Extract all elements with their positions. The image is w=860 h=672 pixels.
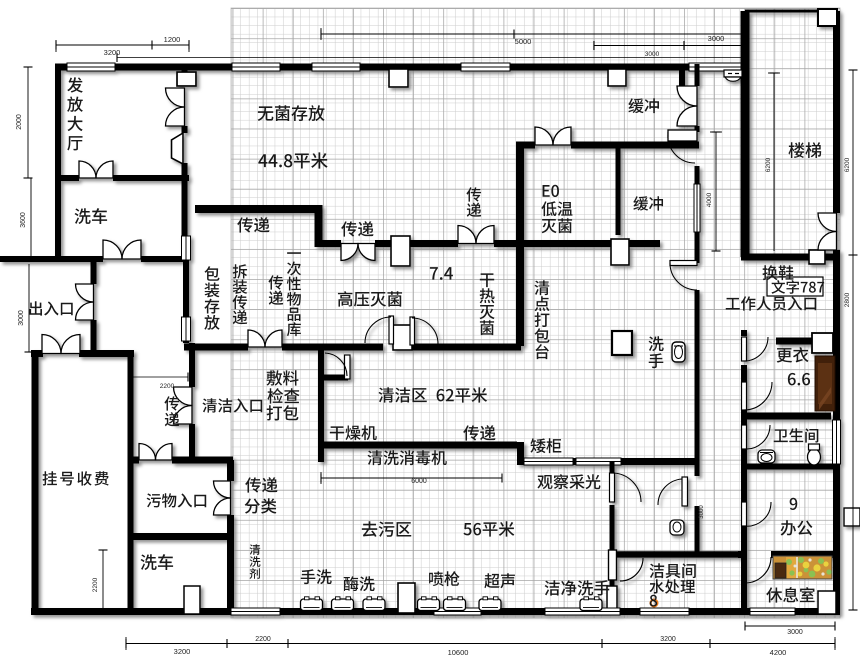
svg-text:3000: 3000: [645, 51, 660, 58]
svg-text:3000: 3000: [708, 34, 725, 43]
svg-text:3000: 3000: [699, 505, 705, 519]
svg-text:5000: 5000: [515, 37, 532, 46]
svg-text:2200: 2200: [92, 577, 99, 592]
svg-text:3000: 3000: [787, 629, 803, 636]
svg-text:4200: 4200: [770, 648, 787, 657]
svg-text:2200: 2200: [160, 383, 175, 390]
svg-text:3200: 3200: [174, 647, 191, 656]
svg-text:4000: 4000: [706, 192, 713, 207]
svg-text:2800: 2800: [844, 292, 851, 307]
svg-text:1200: 1200: [164, 35, 181, 44]
svg-text:3200: 3200: [104, 48, 121, 57]
svg-text:6000: 6000: [411, 478, 427, 485]
svg-text:2200: 2200: [255, 636, 271, 643]
svg-text:3600: 3600: [20, 212, 27, 228]
svg-text:2000: 2000: [16, 114, 23, 130]
svg-text:6200: 6200: [844, 157, 851, 172]
svg-text:3200: 3200: [660, 636, 676, 643]
svg-text:3000: 3000: [18, 310, 25, 326]
svg-text:10600: 10600: [448, 648, 469, 657]
svg-text:6200: 6200: [765, 157, 772, 172]
